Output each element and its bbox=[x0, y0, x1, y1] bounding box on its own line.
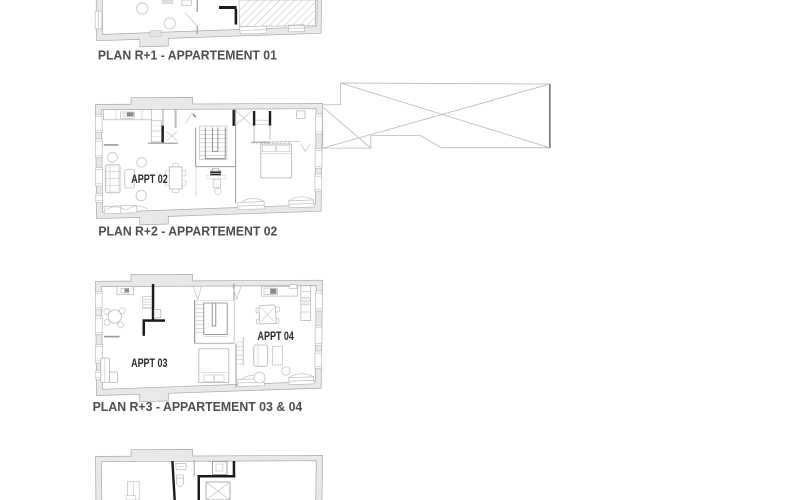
svg-text:PLAN R+1 - APPARTEMENT 01: PLAN R+1 - APPARTEMENT 01 bbox=[98, 49, 277, 63]
svg-text:APPT 04: APPT 04 bbox=[258, 329, 295, 343]
svg-text:PLAN R+2 - APPARTEMENT 02: PLAN R+2 - APPARTEMENT 02 bbox=[98, 224, 277, 238]
svg-text:APPT 03: APPT 03 bbox=[131, 356, 168, 370]
svg-text:APPT 02: APPT 02 bbox=[131, 172, 168, 186]
svg-text:PLAN R+3 - APPARTEMENT 03 & 04: PLAN R+3 - APPARTEMENT 03 & 04 bbox=[93, 400, 303, 414]
